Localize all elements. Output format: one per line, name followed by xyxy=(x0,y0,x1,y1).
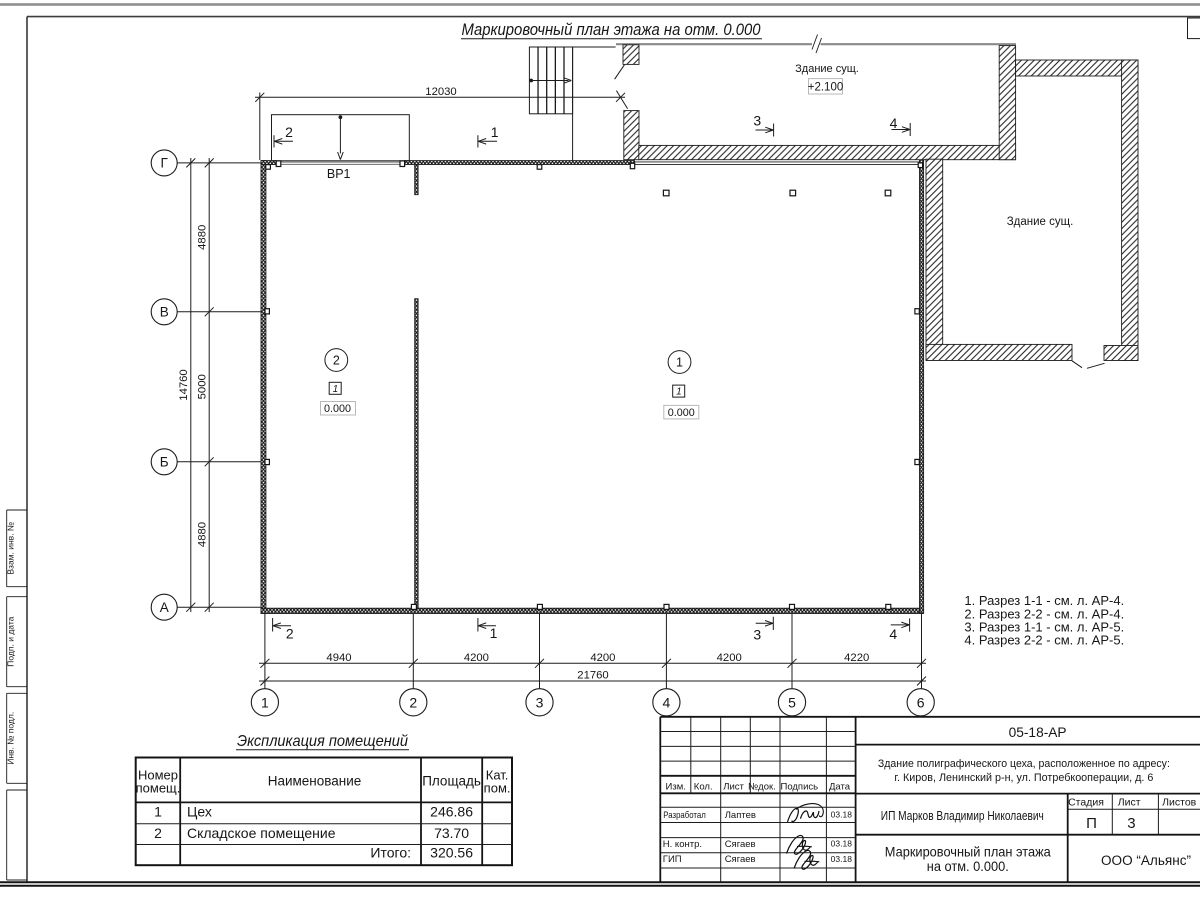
svg-text:3: 3 xyxy=(753,112,761,128)
svg-text:1: 1 xyxy=(261,694,269,710)
svg-text:1: 1 xyxy=(333,384,339,395)
svg-text:Стадия: Стадия xyxy=(1068,797,1104,809)
svg-text:14760: 14760 xyxy=(178,369,190,400)
svg-text:на отм. 0.000.: на отм. 0.000. xyxy=(927,858,1009,874)
svg-text:5: 5 xyxy=(788,694,796,710)
svg-text:Наименование: Наименование xyxy=(268,774,362,789)
svg-text:4200: 4200 xyxy=(464,652,489,664)
svg-text:320.56: 320.56 xyxy=(430,845,473,861)
svg-text:4880: 4880 xyxy=(197,225,209,250)
svg-text:1: 1 xyxy=(676,387,682,398)
svg-text:Изм.: Изм. xyxy=(666,781,686,792)
svg-text:6: 6 xyxy=(917,694,925,710)
svg-text:Сягаев: Сягаев xyxy=(725,839,756,850)
svg-text:Площадь: Площадь xyxy=(422,774,481,789)
svg-text:Итого:: Итого: xyxy=(370,845,411,861)
svg-text:Здание полиграфического цеха,: Здание полиграфического цеха, расположен… xyxy=(878,758,1170,770)
svg-text:3: 3 xyxy=(753,626,761,642)
svg-text:03.18: 03.18 xyxy=(831,810,853,820)
svg-text:помещ.: помещ. xyxy=(136,781,181,796)
svg-text:пом.: пом. xyxy=(484,781,511,796)
svg-text:Инв. № подл.: Инв. № подл. xyxy=(6,712,16,765)
svg-text:1: 1 xyxy=(491,124,499,140)
svg-text:73.70: 73.70 xyxy=(434,825,469,841)
svg-text:Сягаев: Сягаев xyxy=(725,854,756,865)
svg-text:ИП Марков Владимир Николаевич: ИП Марков Владимир Николаевич xyxy=(881,809,1044,823)
svg-text:Экспликация помещений: Экспликация помещений xyxy=(237,733,408,750)
svg-text:2: 2 xyxy=(333,353,340,367)
svg-text:21760: 21760 xyxy=(577,670,608,682)
svg-text:4: 4 xyxy=(890,115,898,131)
svg-text:Разработал: Разработал xyxy=(663,810,706,821)
svg-text:Г: Г xyxy=(161,156,169,171)
svg-text:2: 2 xyxy=(154,825,162,841)
svg-text:2: 2 xyxy=(409,694,417,710)
svg-text:4. Разрез 2-2 - см. л. АР-5.: 4. Разрез 2-2 - см. л. АР-5. xyxy=(964,633,1124,648)
svg-text:4220: 4220 xyxy=(844,652,869,664)
svg-text:Б: Б xyxy=(160,455,169,470)
svg-text:Лист: Лист xyxy=(723,781,744,792)
svg-text:4: 4 xyxy=(663,694,671,710)
svg-text:12030: 12030 xyxy=(425,86,456,98)
svg-text:П: П xyxy=(1086,815,1097,832)
svg-text:3: 3 xyxy=(1127,815,1135,832)
svg-text:2: 2 xyxy=(285,124,293,140)
svg-text:Взам. инв. №: Взам. инв. № xyxy=(6,522,16,575)
svg-text:А: А xyxy=(160,600,169,615)
svg-text:Кол.: Кол. xyxy=(694,781,713,792)
svg-text:1: 1 xyxy=(676,355,683,369)
svg-text:Лист: Лист xyxy=(1118,797,1141,809)
svg-text:5000: 5000 xyxy=(197,374,209,399)
svg-text:Маркировочный план этажа на от: Маркировочный план этажа на отм. 0.000 xyxy=(462,21,762,39)
svg-text:1: 1 xyxy=(490,625,498,641)
svg-text:2: 2 xyxy=(286,625,294,641)
svg-text:В: В xyxy=(160,305,169,320)
svg-text:4200: 4200 xyxy=(590,652,615,664)
svg-text:03.18: 03.18 xyxy=(831,839,853,849)
svg-text:4940: 4940 xyxy=(326,652,351,664)
svg-text:Цех: Цех xyxy=(187,803,212,819)
svg-text:Здание сущ.: Здание сущ. xyxy=(1007,216,1074,228)
svg-text:№док.: №док. xyxy=(748,781,776,792)
svg-text:Дата: Дата xyxy=(829,781,851,792)
svg-text:246.86: 246.86 xyxy=(430,803,473,819)
svg-text:ВР1: ВР1 xyxy=(327,167,351,181)
svg-text:ГИП: ГИП xyxy=(663,854,682,865)
svg-text:1: 1 xyxy=(154,803,162,819)
svg-text:0.000: 0.000 xyxy=(324,403,351,415)
svg-text:Подпись: Подпись xyxy=(780,781,818,792)
svg-text:4: 4 xyxy=(889,626,897,642)
svg-text:03.18: 03.18 xyxy=(831,854,853,864)
svg-text:3: 3 xyxy=(536,694,544,710)
svg-text:Листов: Листов xyxy=(1162,797,1197,809)
svg-text:Лаптев: Лаптев xyxy=(725,810,756,821)
svg-text:Складское помещение: Складское помещение xyxy=(187,825,336,841)
svg-text:4880: 4880 xyxy=(197,522,209,547)
svg-text:4200: 4200 xyxy=(717,652,742,664)
svg-text:Подп. и дата: Подп. и дата xyxy=(6,616,16,666)
svg-text:+2.100: +2.100 xyxy=(808,81,844,93)
svg-text:ООО “Альянс”: ООО “Альянс” xyxy=(1101,853,1191,868)
svg-text:0.000: 0.000 xyxy=(668,407,695,419)
svg-text:Здание сущ.: Здание сущ. xyxy=(795,63,859,75)
svg-text:05-18-АР: 05-18-АР xyxy=(1009,725,1067,740)
svg-text:Н. контр.: Н. контр. xyxy=(663,839,702,850)
svg-text:г. Киров, Ленинский р-н, ул.: г. Киров, Ленинский р-н, ул. Потребкоопе… xyxy=(894,772,1153,784)
